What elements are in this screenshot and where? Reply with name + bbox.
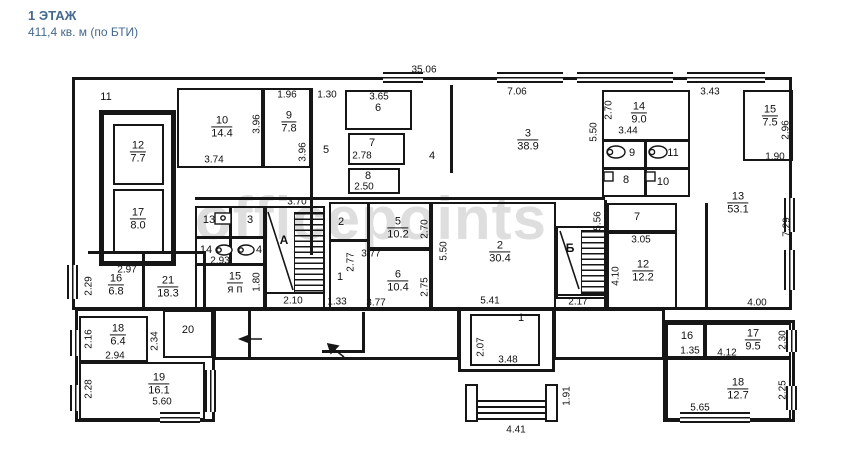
room-label-4-s: 4	[256, 244, 262, 256]
dim-label: 3.43	[700, 87, 719, 98]
dim-label: 4.10	[611, 266, 622, 285]
room-label-8-wc: 8	[623, 174, 629, 186]
room-label-4: 4	[429, 150, 435, 162]
room-label-17: 178.0	[130, 206, 146, 231]
dim-label: 2.34	[150, 331, 161, 350]
room-label-5-mid: 510.2	[387, 215, 408, 240]
dim-label: 2.70	[604, 100, 615, 119]
room-label-19: 1916.1	[148, 371, 169, 396]
room-label-9-wc: 9	[629, 147, 635, 159]
toilet-icon	[649, 149, 654, 154]
room-label-9: 97.8	[281, 109, 296, 134]
dim-label: 3.77	[361, 249, 380, 260]
room-label-10-wc: 10	[657, 176, 669, 188]
dim-label: 2.70	[420, 219, 431, 238]
dim-label: 7.06	[507, 87, 526, 98]
dim-label: 35.06	[411, 65, 436, 76]
room-label-12: 127.7	[130, 139, 146, 164]
dim-label: 1.33	[327, 297, 346, 308]
room-label-1-s: 1	[337, 271, 343, 283]
sink-icon	[646, 172, 655, 181]
sink-icon	[604, 172, 613, 181]
room-label-3-s: 3	[247, 214, 253, 226]
dim-label: 2.30	[778, 330, 789, 349]
dim-label: 2.97	[117, 265, 136, 276]
room-label-13: 1353.1	[727, 190, 748, 215]
dim-label: 3.05	[631, 235, 650, 246]
dim-label: 3.44	[618, 126, 637, 137]
entrance-arrow	[240, 335, 250, 343]
room-label-11: 11	[100, 91, 111, 103]
dim-label: 1.91	[562, 386, 573, 405]
room-label-11-wc: 11	[667, 147, 678, 159]
dim-label: 2.16	[84, 329, 95, 348]
room-label-17-br: 179.5	[745, 327, 761, 352]
dim-label: 4.12	[717, 348, 736, 359]
dim-label: 5.41	[480, 296, 499, 307]
dim-label: 2.94	[105, 351, 124, 362]
room-label-18-br: 1812.7	[727, 376, 748, 401]
room-label-7-right: 7	[634, 211, 640, 223]
dim-label: 2.28	[84, 379, 95, 398]
dim-label: 4.00	[747, 298, 766, 309]
room-label-20: 20	[182, 324, 194, 336]
sink-icon	[221, 216, 225, 220]
room-label-6-mid: 610.4	[387, 268, 408, 293]
room-label-21: 2118.3	[157, 274, 178, 299]
toilet-icon	[607, 149, 612, 154]
dim-label: 1.80	[252, 272, 263, 291]
room-label-15: 157.5	[762, 103, 778, 128]
room-label-10: 1014.4	[211, 114, 232, 139]
dim-label: 3.70	[287, 197, 306, 208]
dim-label: 1.35	[680, 346, 699, 357]
dim-label: 2.07	[476, 337, 487, 356]
dim-label: 3.96	[252, 114, 263, 133]
dim-label: 2.10	[283, 296, 302, 307]
room-label-12-right: 1212.2	[632, 258, 653, 283]
dim-label: 5.65	[690, 403, 709, 414]
dim-label: 3.77	[366, 298, 385, 309]
dim-label: 2.17	[568, 297, 587, 308]
dim-label: 4.41	[506, 425, 525, 436]
dim-label: 2.96	[781, 120, 792, 139]
room-label-5: 5	[323, 144, 329, 156]
floor-plan: 1 ЭТАЖ 411,4 кв. м (по БТИ) officepoints	[0, 0, 854, 462]
dim-label: 3.65	[369, 92, 388, 103]
dim-label: 1.30	[317, 90, 336, 101]
dim-label: 2.78	[352, 151, 371, 162]
stair-b-diagonal	[560, 231, 579, 289]
room-label-16-br: 16	[681, 330, 693, 342]
room-label-2-big: 230.4	[489, 239, 510, 264]
stair-a-diagonal	[268, 212, 293, 290]
dim-label: 7.29	[782, 217, 793, 236]
room-label-7: 7	[369, 137, 375, 149]
room-label-13-s: 13	[203, 214, 215, 226]
dim-label: 2.75	[420, 277, 431, 296]
stair-a-label: А	[280, 233, 289, 247]
room-label-18-bl: 186.4	[110, 322, 126, 347]
dim-label: 1.90	[765, 152, 784, 163]
dim-label: 5.50	[439, 241, 450, 260]
dim-label: 2.50	[354, 182, 373, 193]
dim-label: 3.74	[204, 155, 223, 166]
room-label-1-vest: 1	[518, 312, 524, 324]
room-label-8: 8	[365, 170, 371, 182]
dim-label: 1.96	[277, 90, 296, 101]
dim-label: 2.93	[210, 256, 229, 267]
stair-b-label: Б	[566, 241, 575, 255]
dim-label: 3.96	[298, 142, 309, 161]
dim-label: 5.56	[593, 211, 604, 230]
room-label-14: 149.0	[631, 100, 647, 125]
room-label-15-yap: 15я п	[227, 270, 243, 295]
dim-label: 5.50	[589, 122, 600, 141]
dim-label: 5.60	[152, 397, 171, 408]
toilet-icon	[217, 248, 221, 252]
dim-label: 2.25	[778, 380, 789, 399]
dim-label: 3.48	[498, 355, 517, 366]
dim-label: 2.29	[84, 276, 95, 295]
room-label-3: 338.9	[517, 127, 538, 152]
room-label-16: 166.8	[108, 272, 124, 297]
room-label-2-s: 2	[338, 216, 344, 228]
room-label-6: 6	[375, 102, 381, 114]
toilet-icon	[239, 248, 243, 252]
room-label-14-s: 14	[200, 244, 212, 256]
dim-label: 2.77	[346, 252, 357, 271]
